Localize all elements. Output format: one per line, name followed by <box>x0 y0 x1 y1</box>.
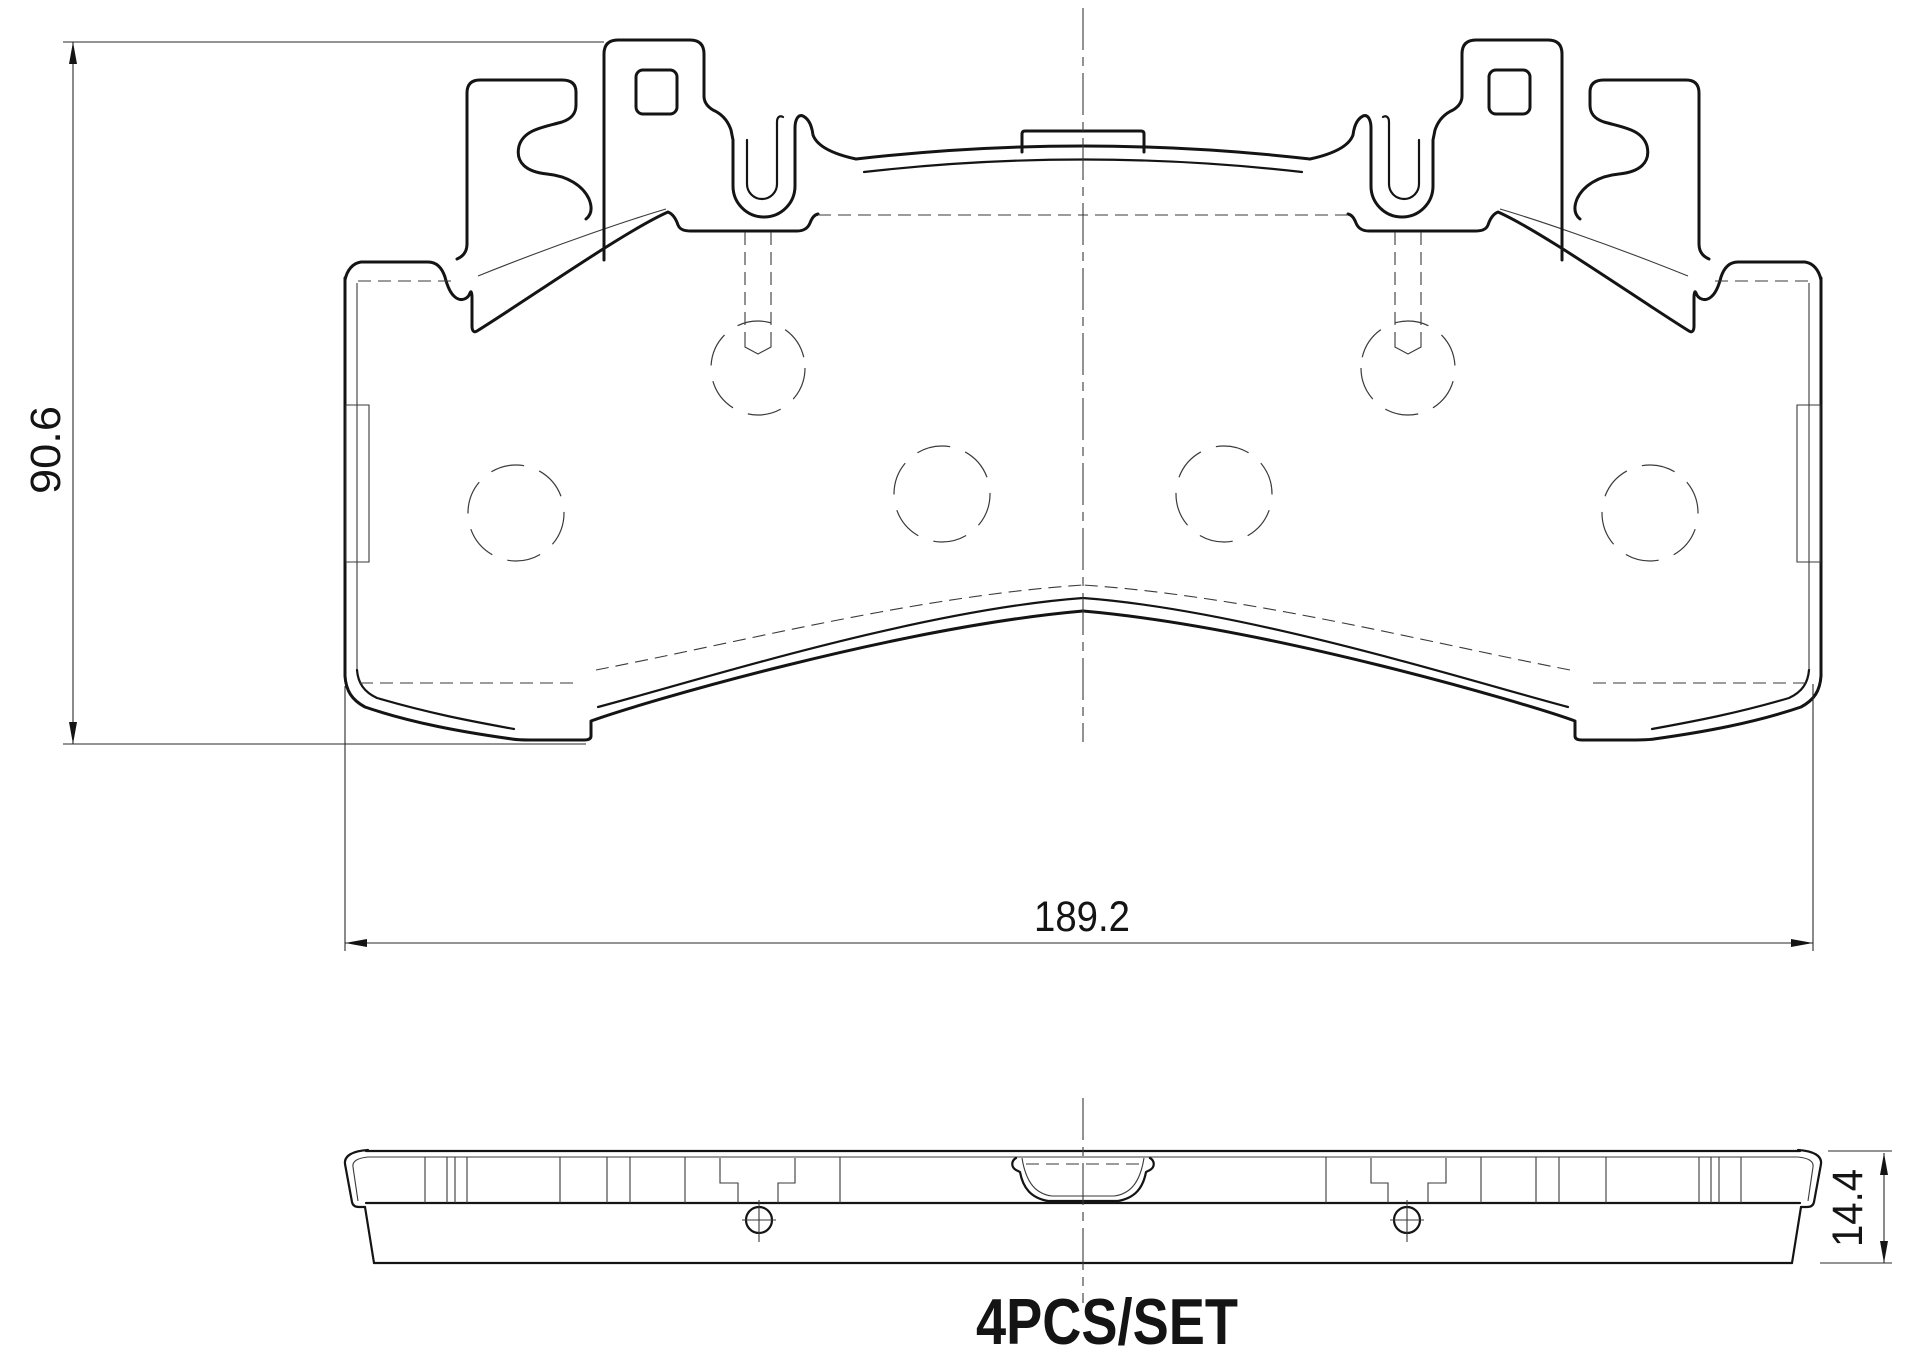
pin-tip-chamfer <box>745 340 771 354</box>
thickness-dimension-label: 14.4 <box>1824 1169 1872 1247</box>
spring-clip-inner <box>747 116 783 199</box>
pin-phantom-circle <box>711 321 805 415</box>
side-view-right-half <box>1083 1150 1821 1263</box>
width-dimension-label: 189.2 <box>1034 893 1130 941</box>
side-view <box>345 1098 1821 1303</box>
side-clip-notch <box>720 1158 795 1203</box>
technical-drawing-page: 90.6 189.2 14.4 4PCS/SET <box>0 0 1920 1357</box>
thickness-arrow-bottom <box>1880 1241 1888 1263</box>
width-dimension: 189.2 <box>345 684 1813 951</box>
mounting-tab-square-hole <box>636 70 677 114</box>
side-left-cap-inner <box>353 1157 368 1201</box>
height-arrow-top <box>69 42 77 64</box>
friction-top-edge-thin <box>478 209 666 276</box>
side-left-cap <box>345 1150 368 1207</box>
side-left-slant <box>365 1207 374 1263</box>
thickness-arrow-top <box>1880 1153 1888 1175</box>
front-view-right-half <box>1083 40 1821 740</box>
width-arrow-left <box>345 939 367 947</box>
height-arrow-bottom <box>69 722 77 744</box>
height-dimension: 90.6 <box>22 42 604 744</box>
retainer-tab <box>457 80 591 259</box>
plate-top-left-profile <box>345 212 818 332</box>
side-view-left-half <box>345 1150 1083 1263</box>
width-arrow-right <box>1791 939 1813 947</box>
abutment-circle-outer <box>468 465 564 561</box>
set-quantity-note: 4PCS/SET <box>976 1285 1238 1357</box>
front-view <box>345 8 1821 742</box>
abutment-circle-inner <box>894 446 990 542</box>
hidden-bottom-arc <box>596 585 1083 670</box>
brake-pad-drawing: 90.6 189.2 14.4 4PCS/SET <box>0 0 1920 1357</box>
front-view-left-half <box>345 40 1083 740</box>
thickness-dimension: 14.4 <box>1820 1151 1892 1263</box>
height-dimension-label: 90.6 <box>22 406 70 494</box>
friction-bottom-left <box>357 670 514 729</box>
